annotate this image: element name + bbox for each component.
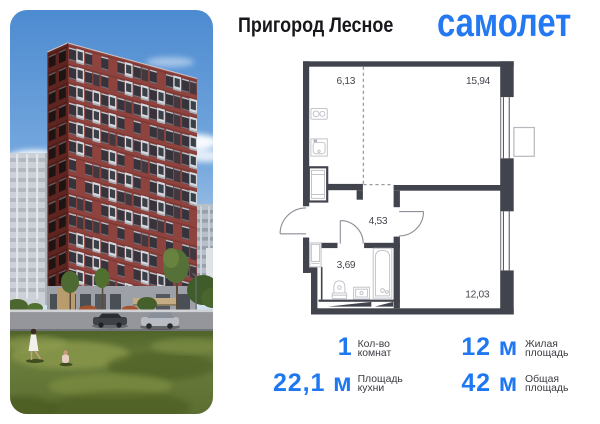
svg-text:12,03: 12,03 [465, 290, 490, 301]
svg-text:6,13: 6,13 [336, 76, 355, 87]
svg-text:4,53: 4,53 [369, 216, 388, 227]
svg-text:3,69: 3,69 [337, 260, 356, 271]
svg-text:15,94: 15,94 [466, 76, 491, 87]
